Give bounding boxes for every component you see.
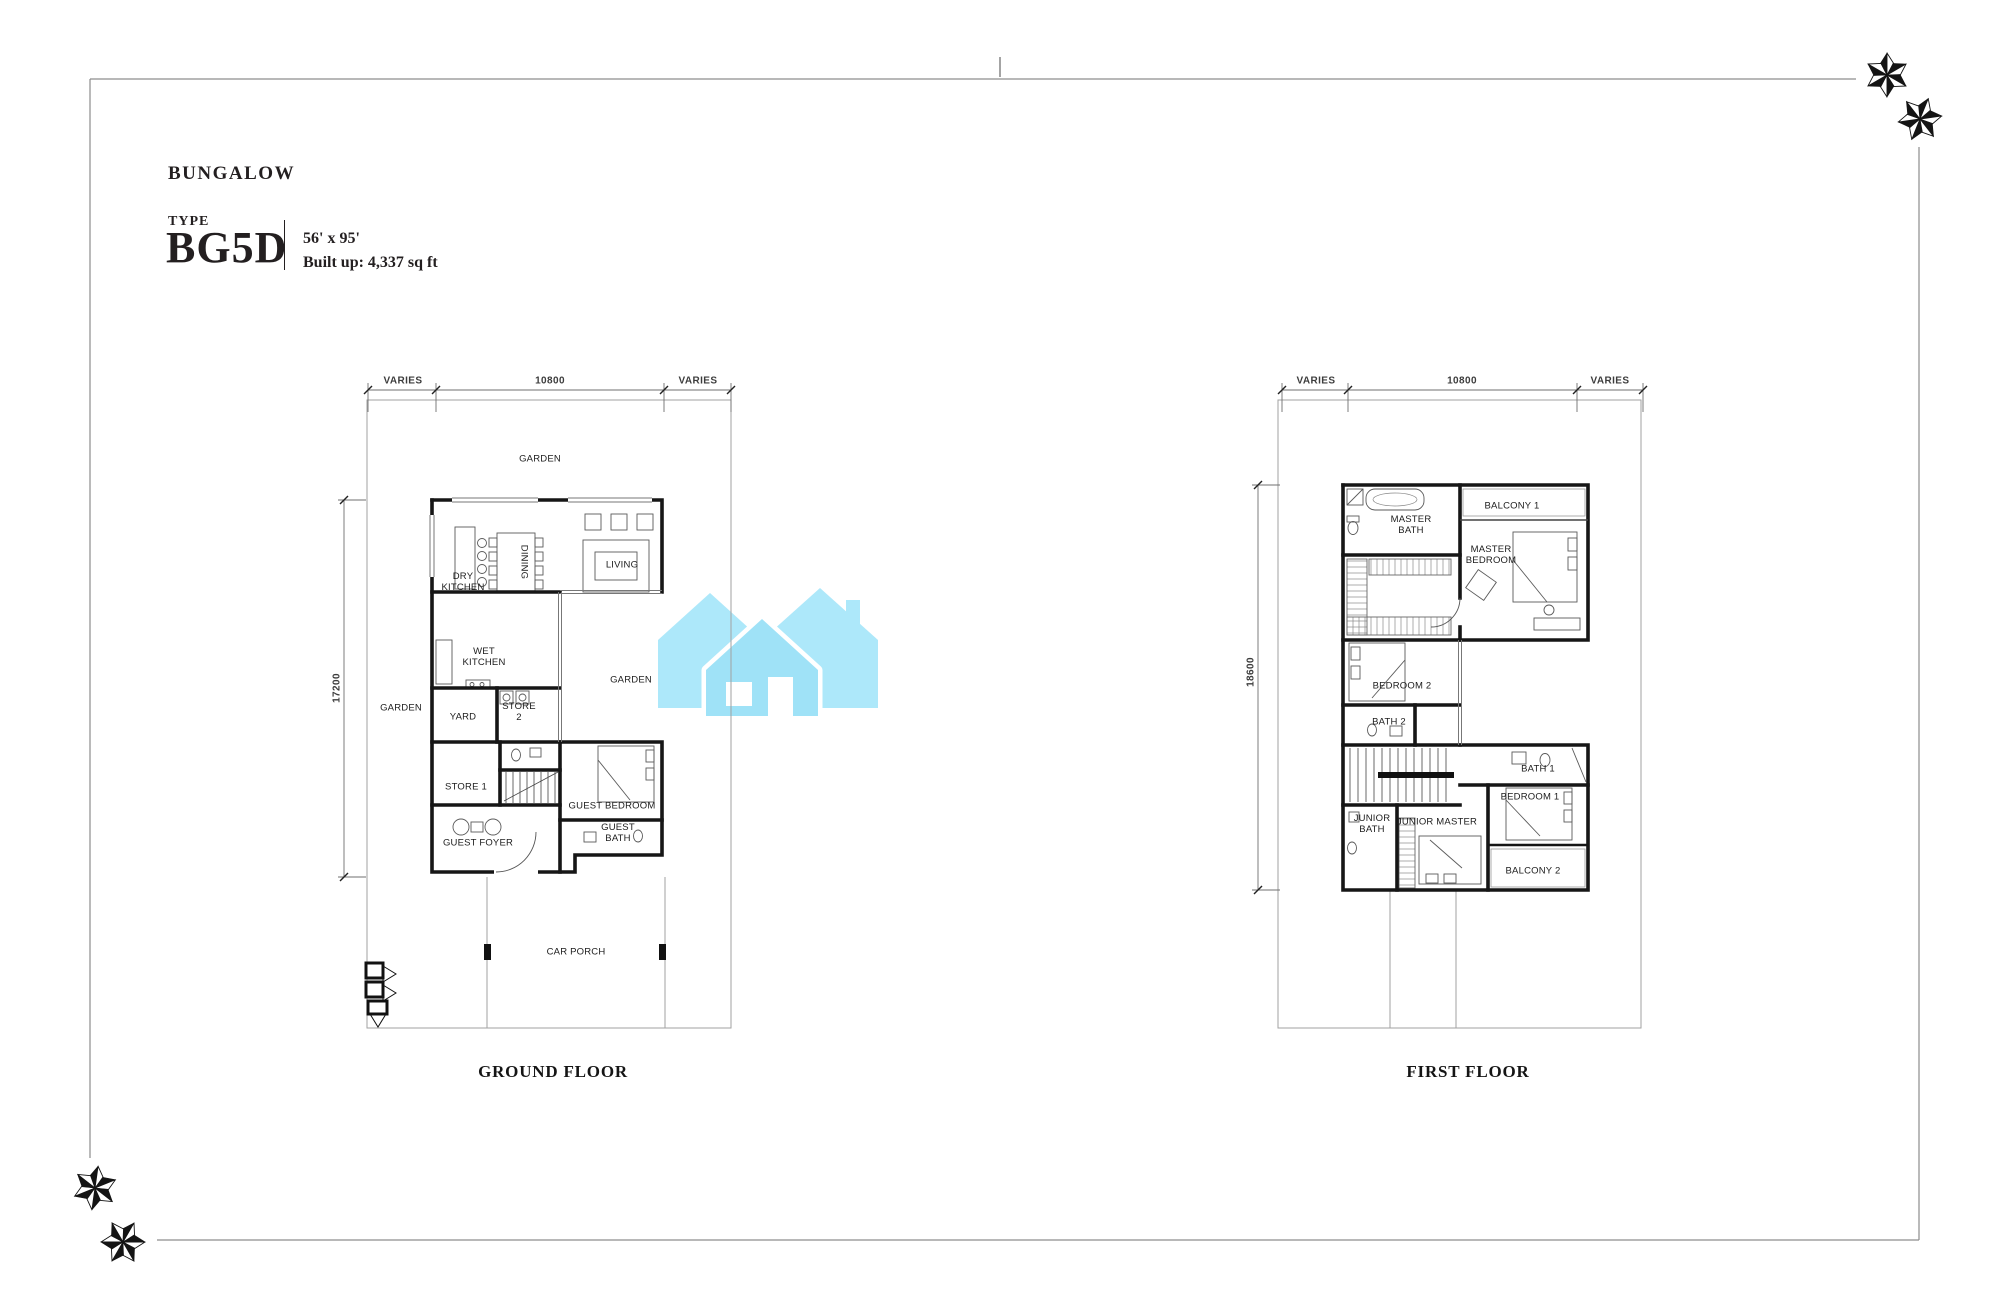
spec-block: 56' x 95' Built up: 4,337 sq ft: [303, 227, 438, 275]
room-label-bath-2: BATH 2: [1372, 716, 1406, 727]
room-label-bath-1: BATH 1: [1521, 763, 1555, 774]
ground-floor-title: GROUND FLOOR: [478, 1062, 628, 1082]
room-label-garden-top: GARDEN: [519, 453, 561, 464]
room-label-dry-kitchen: DRY KITCHEN: [437, 571, 489, 593]
gf-dim-varies-right: VARIES: [679, 376, 718, 387]
room-label-garden-right: GARDEN: [610, 674, 652, 685]
ground-floor-walls: [432, 500, 662, 872]
lot-size: 56' x 95': [303, 227, 438, 251]
room-label-junior-master: JUNIOR MASTER: [1397, 816, 1477, 827]
room-label-guest-bath: GUEST BATH: [596, 822, 640, 844]
room-label-car-porch: CAR PORCH: [547, 946, 606, 957]
ff-dim-varies-left: VARIES: [1297, 376, 1336, 387]
floorplan-drawing: [0, 0, 2000, 1313]
gf-dim-width: 10800: [535, 376, 565, 387]
houses-logo: [658, 588, 878, 716]
room-label-yard: YARD: [450, 711, 477, 722]
gf-dim-varies-left: VARIES: [384, 376, 423, 387]
ff-dim-depth: 18600: [1246, 657, 1257, 687]
built-up-area: Built up: 4,337 sq ft: [303, 251, 438, 275]
room-label-balcony-1: BALCONY 1: [1485, 500, 1540, 511]
room-label-guest-bedroom: GUEST BEDROOM: [569, 800, 656, 811]
ground-floor-boundary: [367, 400, 731, 1028]
room-label-guest-foyer: GUEST FOYER: [443, 837, 513, 848]
brochure-page: BUNGALOW TYPE BG5D 56' x 95' Built up: 4…: [0, 0, 2000, 1313]
first-floor-title: FIRST FLOOR: [1406, 1062, 1529, 1082]
room-label-store-1: STORE 1: [445, 781, 487, 792]
room-label-balcony-2: BALCONY 2: [1506, 865, 1561, 876]
room-label-bedroom-2: BEDROOM 2: [1373, 680, 1432, 691]
room-label-dining: DINING: [518, 545, 529, 579]
category-title: BUNGALOW: [168, 163, 295, 185]
room-label-wet-kitchen: WET KITCHEN: [455, 646, 513, 668]
room-label-junior-bath: JUNIOR BATH: [1348, 813, 1396, 835]
room-label-master-bath: MASTER BATH: [1382, 514, 1440, 536]
garden-gate-symbol: [366, 963, 396, 1027]
type-code: BG5D: [166, 226, 287, 270]
title-divider: [284, 220, 285, 270]
room-label-living: LIVING: [606, 559, 638, 570]
ff-dim-varies-right: VARIES: [1591, 376, 1630, 387]
ff-dim-width: 10800: [1447, 376, 1477, 387]
room-label-garden-left: GARDEN: [380, 702, 422, 713]
gf-dim-depth: 17200: [332, 673, 343, 703]
room-label-master-bedroom: MASTER BEDROOM: [1455, 544, 1527, 566]
room-label-store-2: STORE 2: [499, 701, 539, 723]
room-label-bedroom-1: BEDROOM 1: [1501, 791, 1560, 802]
